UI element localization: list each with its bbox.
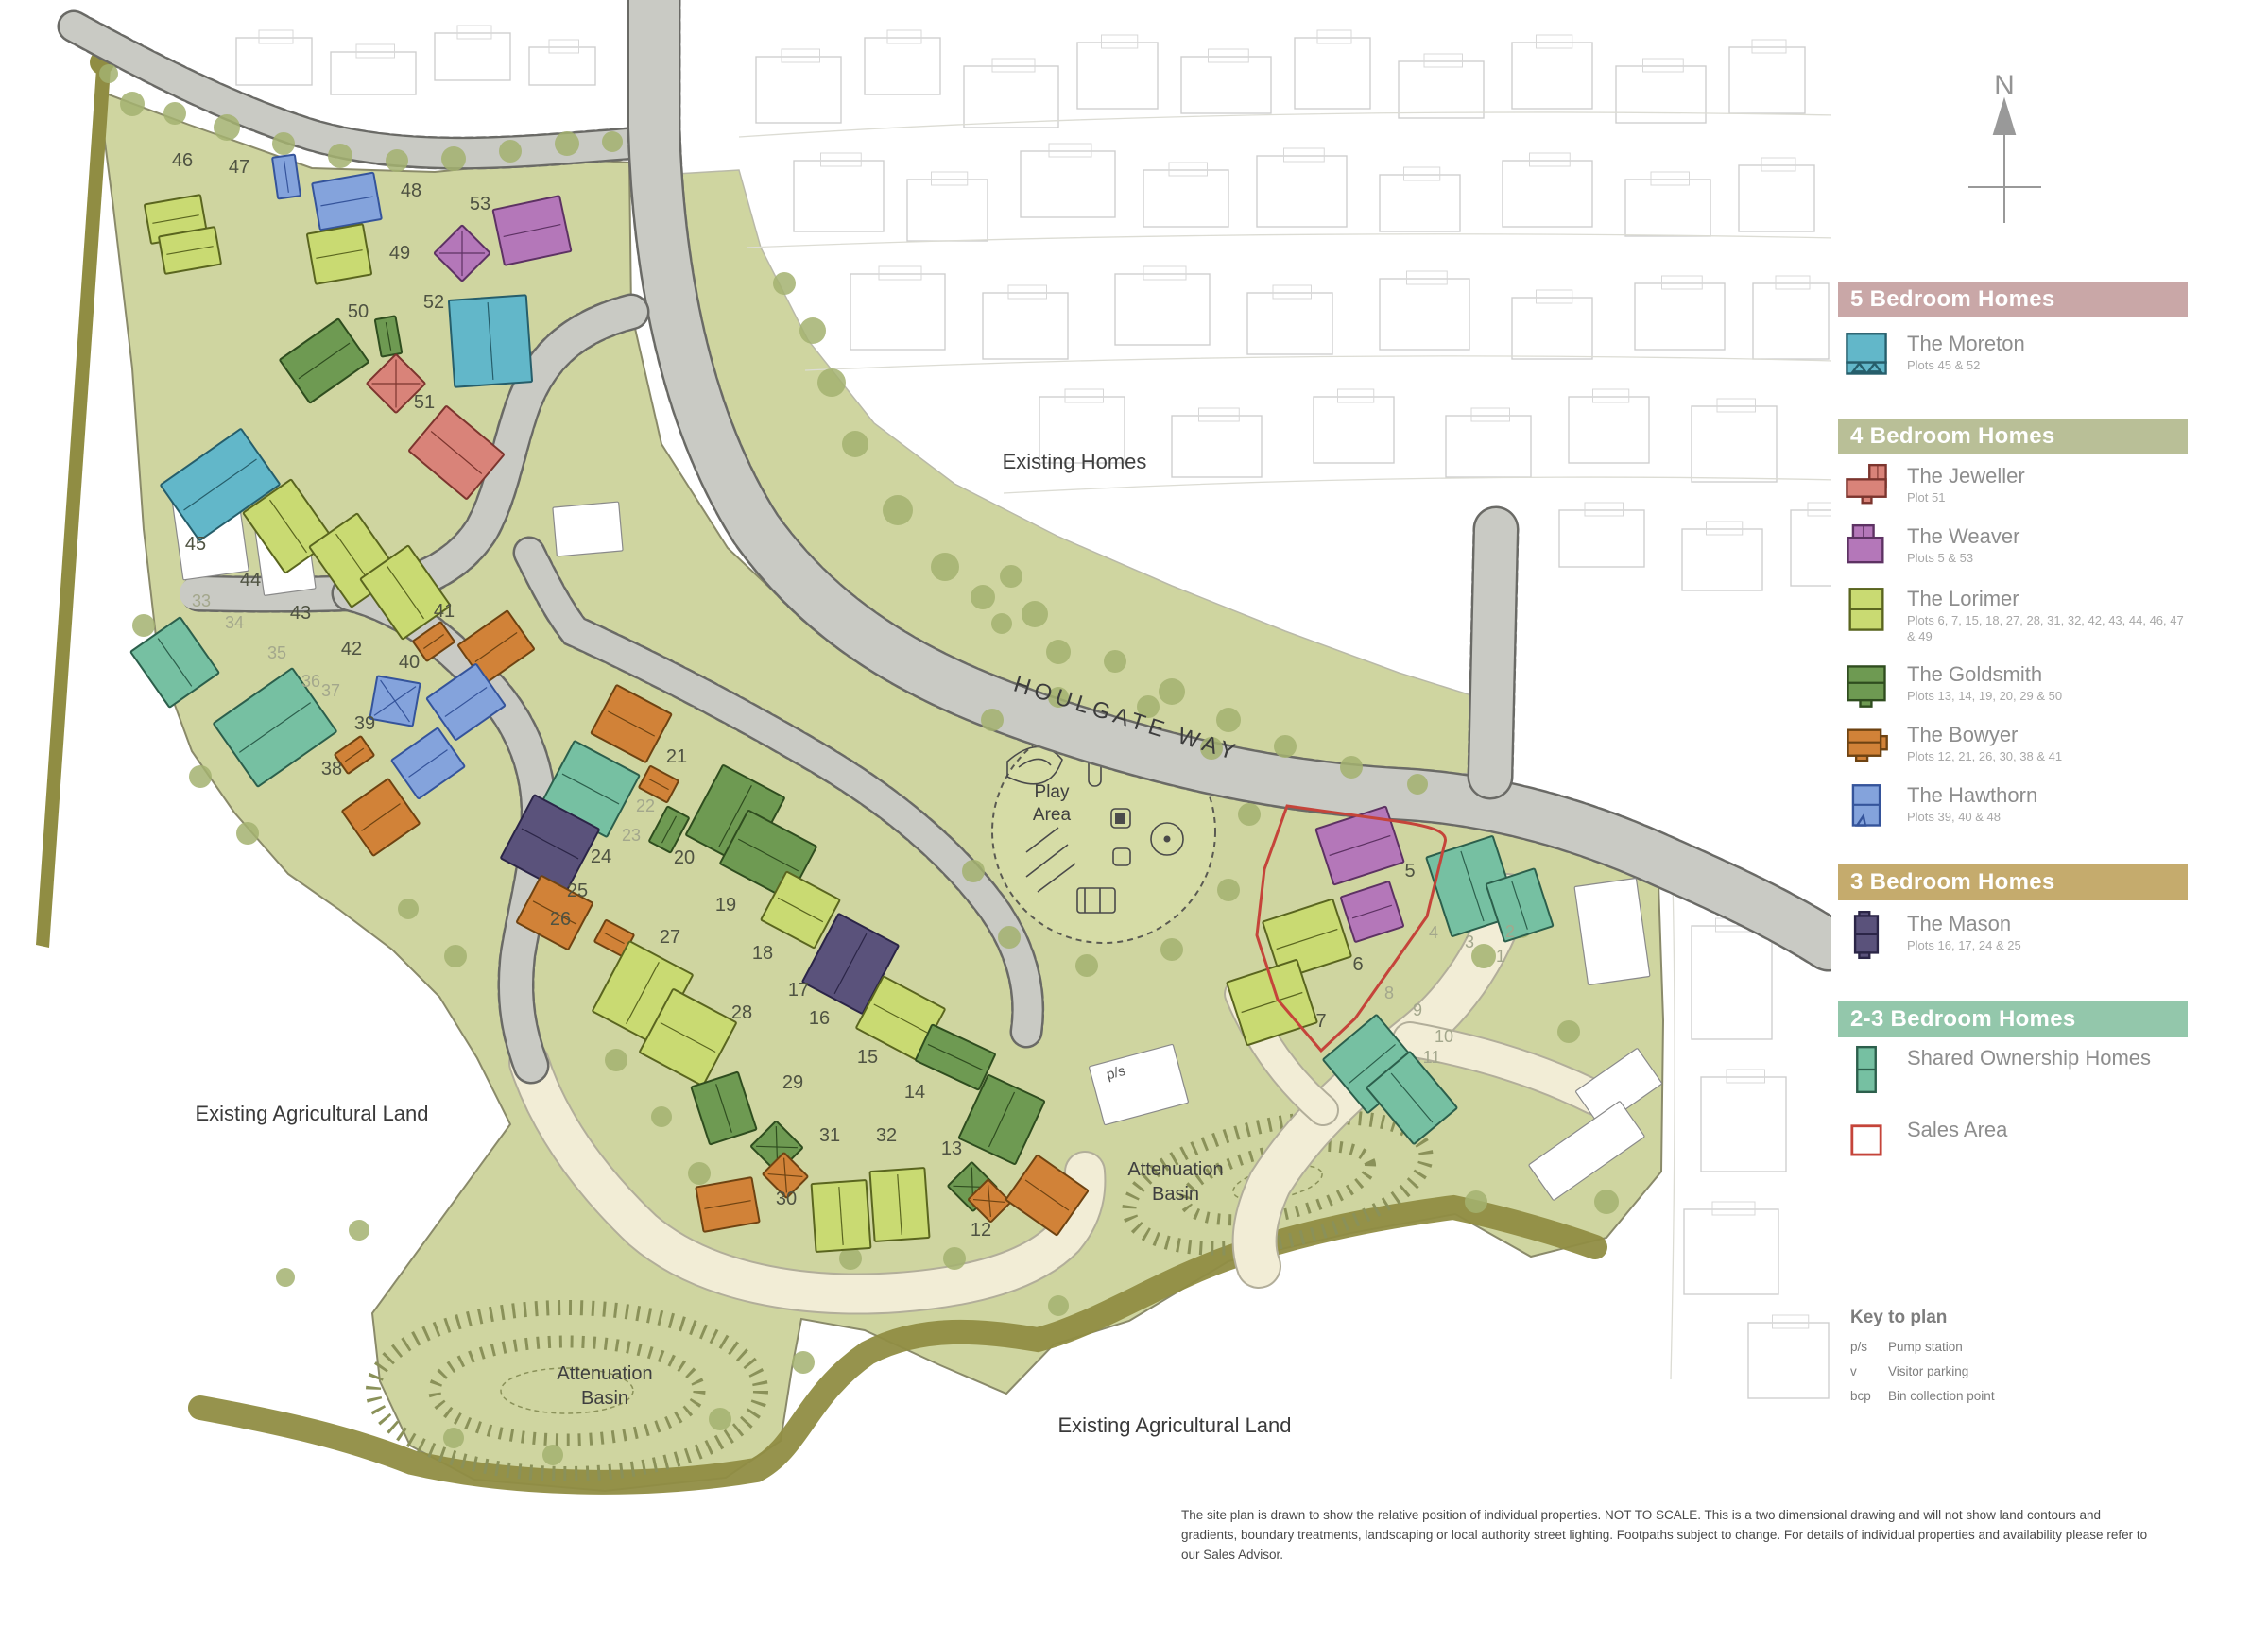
plot-number: 11	[1423, 1048, 1441, 1067]
plot-number: 34	[225, 613, 244, 632]
existing-home-outline	[865, 38, 940, 94]
existing-home-outline	[1399, 61, 1484, 118]
legend-section-header: 4 Bedroom Homes	[1838, 419, 2188, 454]
existing-home-outline	[907, 180, 988, 241]
plot-number: 16	[809, 1008, 830, 1029]
existing-home-outline	[1692, 926, 1772, 1039]
existing-home-outline	[1065, 389, 1104, 402]
existing-home-outline	[1021, 151, 1115, 217]
tree	[962, 860, 985, 882]
tree	[214, 114, 240, 141]
existing-home-outline	[1115, 274, 1210, 345]
house-hawthorn	[272, 155, 301, 199]
tree	[272, 132, 295, 155]
existing-home-outline	[1635, 283, 1725, 350]
legend-item-text: The Jeweller Plot 51	[1907, 463, 2191, 506]
legend-item-sales: Sales Area	[1843, 1117, 2192, 1166]
existing-home-outline	[435, 33, 510, 80]
legend-item-name: The Jeweller	[1907, 465, 2191, 487]
tree	[132, 614, 155, 637]
plot-number: 20	[674, 847, 695, 868]
tree	[1465, 1190, 1487, 1213]
jeweller-icon	[1843, 463, 1892, 512]
tree	[1340, 756, 1363, 779]
legend-item-plots: Plots 39, 40 & 48	[1907, 810, 2191, 826]
hawthorn-swatch-icon	[1843, 782, 1890, 831]
tree	[441, 146, 466, 171]
plot-number: 5	[1404, 861, 1415, 881]
legend-item-plots: Plots 16, 17, 24 & 25	[1907, 938, 2191, 954]
legend-item-text: The Hawthorn Plots 39, 40 & 48	[1907, 782, 2191, 826]
existing-home-outline	[1625, 180, 1710, 236]
tree	[943, 1247, 966, 1270]
plot-number: 22	[636, 796, 655, 815]
plot-number: 32	[876, 1125, 897, 1146]
existing-home-outline	[1727, 1070, 1765, 1083]
existing-home-outline	[1407, 271, 1448, 284]
existing-home-outline	[1008, 285, 1047, 299]
existing-home-outline	[1537, 35, 1572, 48]
mason-swatch-icon	[1843, 911, 1890, 960]
agricultural-land-label: Existing Agricultural Land	[195, 1102, 428, 1125]
plot-number: 7	[1315, 1011, 1326, 1032]
legend-section-header: 2-3 Bedroom Homes	[1838, 1001, 2188, 1037]
attenuation-basin-label: Basin	[1152, 1184, 1199, 1205]
existing-home-outline	[1380, 175, 1460, 231]
existing-home-outline	[1181, 57, 1271, 113]
agricultural-land-label: Existing Agricultural Land	[1057, 1413, 1291, 1437]
existing-home-outline	[1169, 163, 1208, 176]
key-to-plan: Key to plan p/s Pump stationv Visitor pa…	[1850, 1308, 1995, 1413]
tree	[236, 822, 259, 845]
hawthorn-icon	[1843, 782, 1892, 831]
existing-home-outline	[1404, 167, 1440, 180]
sales-icon	[1843, 1117, 1892, 1166]
existing-home-outline	[1273, 285, 1312, 299]
sales-swatch-icon	[1843, 1117, 1890, 1166]
legend-item-name: The Lorimer	[1907, 588, 2191, 609]
weaver-icon	[1843, 523, 1892, 573]
mason-icon	[1843, 911, 1892, 960]
existing-home-outline	[1651, 172, 1690, 185]
legend-item-name: The Mason	[1907, 913, 2191, 934]
parking-court	[553, 502, 623, 556]
plot-number: 12	[971, 1220, 991, 1241]
existing-home-outline	[1471, 408, 1510, 421]
existing-home-outline	[1143, 266, 1186, 280]
existing-home-outline	[850, 274, 945, 350]
existing-home-outline	[1752, 40, 1786, 53]
plot-number: 30	[776, 1189, 797, 1209]
tree	[1216, 708, 1241, 732]
tree	[1160, 938, 1183, 961]
key-row: v Visitor parking	[1850, 1364, 1995, 1378]
existing-homes-label: Existing Homes	[1003, 450, 1147, 473]
parcel-line	[805, 356, 1833, 370]
existing-home-outline	[1209, 49, 1249, 62]
tree	[499, 140, 522, 163]
existing-home-outline	[1380, 279, 1469, 350]
tree	[605, 1049, 627, 1071]
tree	[1407, 774, 1428, 795]
lorimer-swatch-icon	[1843, 586, 1890, 635]
key-label: Bin collection point	[1888, 1389, 1995, 1403]
play-area-label: Area	[1033, 805, 1072, 825]
existing-home-outline	[1776, 276, 1810, 289]
plot-number: 27	[660, 927, 680, 948]
plot-number: 45	[185, 534, 206, 555]
shared-icon	[1843, 1045, 1892, 1094]
house-lorimer	[307, 224, 371, 284]
tree	[386, 149, 408, 172]
plot-number: 10	[1435, 1027, 1453, 1046]
plot-number: 17	[788, 980, 809, 1001]
existing-home-outline	[356, 44, 395, 58]
existing-home-outline	[1692, 406, 1777, 482]
existing-home-outline	[794, 161, 884, 231]
plot-number: 39	[354, 713, 375, 734]
legend-item-name: The Moreton	[1907, 333, 2191, 354]
legend-item-name: The Weaver	[1907, 525, 2191, 547]
existing-home-outline	[1748, 1323, 1829, 1398]
tree	[688, 1162, 711, 1185]
existing-home-outline	[259, 30, 293, 43]
legend-item-name: Shared Ownership Homes	[1907, 1047, 2151, 1069]
tree	[792, 1351, 815, 1374]
site-plan-page: 4647485349505251454443424140393833343536…	[0, 0, 2268, 1626]
legend-item-plots: Plots 13, 14, 19, 20, 29 & 50	[1907, 689, 2191, 705]
tree	[602, 131, 623, 152]
tree	[1471, 944, 1496, 968]
plot-number: 31	[819, 1125, 840, 1146]
tree	[981, 709, 1004, 731]
shared-swatch-icon	[1843, 1045, 1890, 1094]
existing-home-outline	[1049, 144, 1091, 157]
plot-number: 35	[267, 643, 286, 662]
plot-number: 53	[470, 194, 490, 214]
house-bowyer	[696, 1177, 759, 1232]
existing-home-outline	[1338, 389, 1374, 402]
legend-item-mason: The Mason Plots 16, 17, 24 & 25	[1843, 911, 2192, 960]
existing-home-outline	[1314, 397, 1394, 463]
legend-item-bowyer: The Bowyer Plots 12, 21, 26, 30, 38 & 41	[1843, 722, 2192, 771]
plot-number: 28	[731, 1002, 752, 1023]
existing-home-outline	[1739, 165, 1814, 231]
plot-number: 38	[321, 759, 342, 779]
existing-home-outline	[1172, 416, 1262, 477]
house-hawthorn	[369, 676, 420, 726]
existing-home-outline	[1662, 276, 1703, 289]
existing-home-outline	[1102, 35, 1138, 48]
tree	[1048, 1295, 1069, 1316]
parcel-line	[739, 112, 1838, 137]
tree	[328, 144, 352, 168]
tree	[842, 431, 868, 457]
existing-home-outline	[1585, 503, 1624, 516]
existing-home-outline	[756, 57, 841, 123]
lorimer-icon	[1843, 586, 1892, 635]
tree	[931, 553, 959, 581]
existing-home-outline	[1317, 30, 1351, 43]
plot-number: 52	[423, 292, 444, 313]
key-row: p/s Pump station	[1850, 1340, 1995, 1354]
plot-number: 14	[904, 1082, 925, 1103]
tree	[1000, 565, 1022, 588]
plot-number: 1	[1496, 947, 1505, 966]
legend-item-plots: Plots 6, 7, 15, 18, 27, 28, 31, 32, 42, …	[1907, 613, 2191, 645]
attenuation-basin-label: Basin	[581, 1388, 628, 1409]
existing-home-outline	[1569, 397, 1649, 463]
attenuation-basin-label: Attenuation	[557, 1363, 652, 1384]
existing-home-outline	[983, 293, 1068, 359]
plot-number: 51	[414, 392, 435, 413]
tree	[99, 64, 118, 83]
parcel-line	[1671, 879, 1675, 1379]
existing-home-outline	[1512, 43, 1592, 109]
existing-home-outline	[964, 66, 1058, 128]
tree	[1022, 601, 1048, 627]
bowyer-icon	[1843, 722, 1892, 771]
plot-number: 40	[399, 652, 420, 673]
legend-item-lorimer: The Lorimer Plots 6, 7, 15, 18, 27, 28, …	[1843, 586, 2192, 645]
existing-home-outline	[1643, 59, 1684, 72]
plot-number: 50	[348, 301, 369, 322]
existing-home-outline	[1559, 510, 1644, 567]
existing-home-outline	[1616, 66, 1706, 123]
key-abbr: v	[1850, 1364, 1888, 1378]
plot-number: 15	[857, 1047, 878, 1068]
existing-home-outline	[1712, 1202, 1755, 1215]
existing-home-outline	[1257, 156, 1347, 227]
plot-number: 46	[172, 150, 193, 171]
plot-number: 37	[321, 681, 340, 700]
legend-item-plots: Plots 12, 21, 26, 30, 38 & 41	[1907, 749, 2191, 765]
tree	[651, 1106, 672, 1127]
tree	[1046, 640, 1071, 664]
key-label: Visitor parking	[1888, 1364, 1968, 1378]
tree	[1075, 954, 1098, 977]
tree	[555, 131, 579, 156]
existing-home-outline	[331, 52, 416, 94]
legend-item-text: The Bowyer Plots 12, 21, 26, 30, 38 & 41	[1907, 722, 2191, 765]
existing-home-outline	[1512, 298, 1592, 359]
existing-home-outline	[1707, 522, 1743, 535]
tree	[1104, 650, 1126, 673]
plot-number: 24	[591, 847, 611, 867]
attenuation-basin-label: Attenuation	[1127, 1159, 1223, 1180]
goldsmith-icon	[1843, 661, 1892, 710]
existing-home-outline	[1295, 38, 1370, 109]
legend-item-name: The Bowyer	[1907, 724, 2191, 745]
existing-home-outline	[1199, 408, 1240, 421]
key-abbr: p/s	[1850, 1340, 1888, 1354]
legend-section-header: 3 Bedroom Homes	[1838, 864, 2188, 900]
legend-item-hawthorn: The Hawthorn Plots 39, 40 & 48	[1843, 782, 2192, 831]
existing-home-outline	[887, 30, 921, 43]
goldsmith-swatch-icon	[1843, 661, 1890, 710]
plot-number: 47	[229, 157, 249, 178]
plot-number: 2	[1505, 922, 1515, 941]
existing-home-outline	[932, 172, 968, 185]
house-lorimer	[869, 1168, 929, 1241]
legend-item-text: The Goldsmith Plots 13, 14, 19, 20, 29 &…	[1907, 661, 2191, 705]
legend-item-goldsmith: The Goldsmith Plots 13, 14, 19, 20, 29 &…	[1843, 661, 2192, 710]
tree	[709, 1408, 731, 1430]
road	[1490, 529, 1496, 777]
tree	[276, 1268, 295, 1287]
existing-home-outline	[1530, 153, 1571, 166]
plot-number: 19	[715, 895, 736, 916]
legend-item-plots: Plots 5 & 53	[1907, 551, 2191, 567]
tree	[1238, 803, 1261, 826]
tree	[120, 92, 145, 116]
existing-home-outline	[1537, 290, 1572, 303]
play-area-label: Play	[1035, 782, 1070, 802]
existing-home-outline	[549, 40, 579, 53]
plot-number: 26	[550, 909, 571, 930]
legend-item-name: Sales Area	[1907, 1119, 2007, 1140]
plot-number: 42	[341, 639, 362, 659]
tree	[349, 1220, 369, 1241]
plot-number: 29	[782, 1072, 803, 1093]
plot-number: 8	[1384, 984, 1394, 1002]
parcel-line	[1004, 477, 1838, 493]
jeweller-swatch-icon	[1843, 463, 1890, 512]
tree	[398, 899, 419, 919]
existing-home-outline	[1753, 283, 1829, 359]
legend-item-text: The Weaver Plots 5 & 53	[1907, 523, 2191, 567]
plot-number: 18	[752, 943, 773, 964]
legend-item-name: The Goldsmith	[1907, 663, 2191, 685]
legend-item-text: Shared Ownership Homes	[1907, 1045, 2151, 1069]
tree	[1557, 1020, 1580, 1043]
legend-section-header: 5 Bedroom Homes	[1838, 282, 2188, 317]
key-row: bcp Bin collection point	[1850, 1389, 1995, 1403]
legend-item-text: The Lorimer Plots 6, 7, 15, 18, 27, 28, …	[1907, 586, 2191, 645]
legend-item-name: The Hawthorn	[1907, 784, 2191, 806]
plot-number: 4	[1429, 923, 1438, 942]
tree	[971, 585, 995, 609]
plot-number: 6	[1352, 954, 1363, 975]
plot-number: 33	[192, 591, 211, 610]
legend-item-text: Sales Area	[1907, 1117, 2007, 1140]
tree	[444, 945, 467, 967]
plot-number: 43	[290, 603, 311, 624]
existing-home-outline	[1446, 416, 1531, 477]
tree	[443, 1428, 464, 1448]
tree	[991, 613, 1012, 634]
tree	[1217, 879, 1240, 901]
legend-item-plots: Plot 51	[1907, 490, 2191, 506]
existing-home-outline	[1247, 293, 1332, 354]
existing-home-outline	[1682, 529, 1762, 590]
existing-home-outline	[1077, 43, 1158, 109]
existing-home-outline	[879, 266, 921, 280]
existing-home-outline	[1729, 47, 1805, 113]
tree	[542, 1445, 563, 1465]
plot-number: 36	[301, 672, 320, 691]
key-abbr: bcp	[1850, 1389, 1888, 1403]
plot-number: 21	[666, 746, 687, 767]
existing-home-outline	[1424, 54, 1463, 67]
legend-item-plots: Plots 45 & 52	[1907, 358, 2191, 374]
plot-number: 3	[1465, 933, 1474, 951]
plot-number: 48	[401, 180, 421, 201]
bowyer-swatch-icon	[1843, 722, 1890, 771]
plot-number: 41	[434, 601, 455, 622]
house-lorimer	[812, 1180, 871, 1252]
existing-home-outline	[1717, 399, 1756, 412]
existing-home-outline	[1808, 503, 1833, 516]
plot-number: 44	[240, 570, 261, 590]
plot-number: 23	[622, 826, 641, 845]
tree	[799, 317, 826, 344]
tree	[817, 368, 846, 397]
tree	[773, 272, 796, 295]
existing-home-outline	[782, 49, 820, 62]
moreton-swatch-icon	[1843, 331, 1890, 380]
existing-home-outline	[1593, 389, 1629, 402]
plot-number: 25	[567, 881, 588, 901]
plot-number: 9	[1413, 1001, 1422, 1019]
weaver-swatch-icon	[1843, 523, 1890, 573]
existing-home-outline	[1684, 1209, 1778, 1294]
plot-number: 49	[389, 243, 410, 264]
legend-item-weaver: The Weaver Plots 5 & 53	[1843, 523, 2192, 573]
existing-home-outline	[1773, 1315, 1809, 1328]
house-hawthorn	[312, 173, 382, 231]
legend-item-text: The Moreton Plots 45 & 52	[1907, 331, 2191, 374]
existing-home-outline	[1761, 158, 1795, 171]
disclaimer-text: The site plan is drawn to show the relat…	[1181, 1506, 2156, 1566]
legend-item-shared: Shared Ownership Homes	[1843, 1045, 2192, 1094]
parking-court	[1574, 878, 1650, 984]
legend-item-jeweller: The Jeweller Plot 51	[1843, 463, 2192, 512]
legend-item-text: The Mason Plots 16, 17, 24 & 25	[1907, 911, 2191, 954]
north-label: N	[1994, 70, 2015, 101]
existing-home-outline	[992, 59, 1035, 72]
existing-home-outline	[1284, 148, 1325, 162]
tree	[1274, 735, 1297, 758]
key-to-plan-title: Key to plan	[1850, 1308, 1995, 1328]
field-boundary-hedge	[36, 55, 112, 948]
tree	[1594, 1190, 1619, 1214]
house-moreton	[449, 295, 532, 386]
plot-number: 13	[941, 1138, 962, 1159]
existing-home-outline	[821, 153, 862, 166]
tree	[1159, 678, 1185, 705]
existing-home-outline	[1503, 161, 1592, 227]
key-label: Pump station	[1888, 1340, 1963, 1354]
tree	[189, 765, 212, 788]
existing-home-outline	[457, 26, 491, 39]
existing-home-outline	[1143, 170, 1228, 227]
existing-home-outline	[236, 38, 312, 85]
tree	[883, 495, 913, 525]
existing-home-outline	[1701, 1077, 1786, 1172]
legend-item-moreton: The Moreton Plots 45 & 52	[1843, 331, 2192, 380]
tree	[163, 102, 186, 125]
tree	[998, 926, 1021, 949]
moreton-icon	[1843, 331, 1892, 380]
